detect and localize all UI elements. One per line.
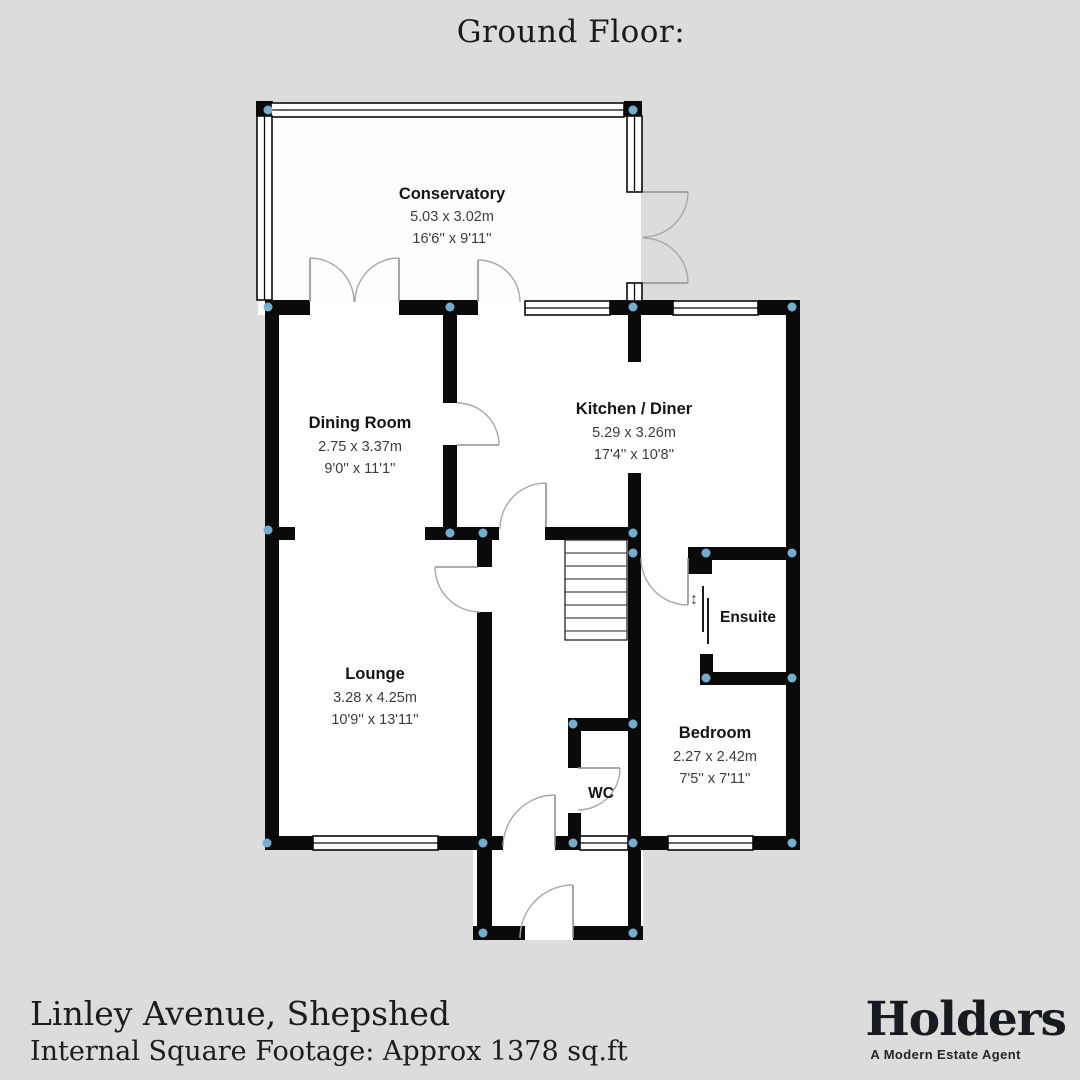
room-dim-dining-metric: 2.75 x 3.37m	[318, 439, 402, 455]
room-label-lounge: Lounge	[345, 665, 405, 683]
room-label-wc: WC	[588, 785, 614, 802]
property-info: Linley Avenue, Shepshed Internal Square …	[30, 996, 628, 1067]
room-label-kitchen-diner: Kitchen / Diner	[576, 400, 693, 418]
room-dim-lounge-metric: 3.28 x 4.25m	[333, 690, 417, 706]
room-dim-bedroom-imperial: 7'5'' x 7'11''	[679, 771, 750, 787]
floor-plan: ↕ Conservatory 5.03 x 3.02m 16'6'' x 9'1…	[0, 0, 1080, 1080]
agency-logo-wordmark: Holders	[865, 995, 1066, 1044]
room-label-dining-room: Dining Room	[309, 414, 412, 432]
floorplan-page: Ground Floor:	[0, 0, 1080, 1080]
room-dim-bedroom-metric: 2.27 x 2.42m	[673, 749, 757, 765]
room-dim-conservatory-imperial: 16'6'' x 9'11''	[412, 231, 491, 247]
room-dim-kitchen-metric: 5.29 x 3.26m	[592, 425, 676, 441]
property-footage: Internal Square Footage: Approx 1378 sq.…	[30, 1037, 628, 1067]
agency-logo: Holders A Modern Estate Agent	[865, 995, 1066, 1062]
room-dim-conservatory-metric: 5.03 x 3.02m	[410, 209, 494, 225]
room-dim-lounge-imperial: 10'9'' x 13'11''	[331, 712, 419, 728]
room-label-conservatory: Conservatory	[399, 185, 506, 203]
property-address: Linley Avenue, Shepshed	[30, 996, 628, 1032]
room-dim-dining-imperial: 9'0'' x 11'1''	[324, 461, 395, 477]
room-label-ensuite: Ensuite	[720, 609, 776, 626]
room-fills	[258, 103, 800, 940]
staircase	[565, 540, 627, 640]
agency-tagline: A Modern Estate Agent	[870, 1047, 1066, 1062]
room-label-bedroom: Bedroom	[679, 724, 751, 742]
room-dim-kitchen-imperial: 17'4'' x 10'8''	[594, 447, 675, 463]
sliding-door-arrow-icon: ↕	[690, 591, 698, 608]
